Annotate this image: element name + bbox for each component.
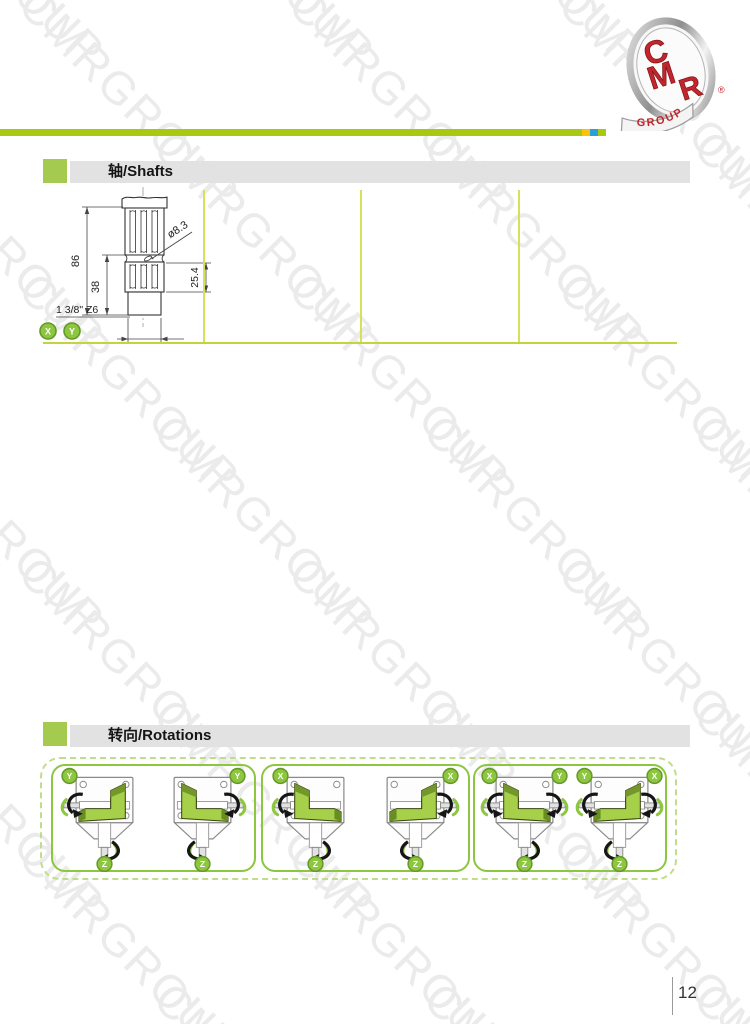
axis-badge-top-right: Y (552, 769, 567, 784)
axis-badge-top-left: Y (577, 769, 592, 784)
svg-text:Z: Z (102, 859, 107, 869)
page-number: 12 (678, 983, 697, 1003)
input-shaft (484, 803, 500, 808)
axis-badge-top-right: X (443, 769, 458, 784)
column-divider-2 (360, 190, 362, 343)
svg-text:Z: Z (413, 859, 418, 869)
input-shaft (550, 803, 566, 808)
spline-label: 1 3/8" Z6 (56, 304, 98, 316)
rotation-diagram: YXZ (572, 766, 667, 872)
svg-text:Z: Z (617, 859, 622, 869)
rotation-box-2: XZXZ (261, 764, 470, 872)
column-divider-3 (518, 190, 520, 343)
svg-text:X: X (487, 771, 493, 781)
dim-86-text: 86 (70, 255, 82, 267)
rotations-header-title: 转向/Rotations (108, 725, 211, 747)
shafts-header-square (43, 159, 67, 183)
rotation-box-1: YZYZ (51, 764, 256, 872)
input-shaft (64, 803, 80, 808)
axis-badge-bottom: Z (517, 857, 532, 872)
svg-text:Y: Y (235, 771, 241, 781)
dim-38-text: 38 (90, 281, 102, 293)
axis-badge-top-right: Y (230, 769, 245, 784)
svg-text:X: X (45, 326, 51, 336)
corner-screw (595, 781, 601, 787)
svg-text:Y: Y (66, 771, 72, 781)
rotation-diagram: YZ (57, 766, 152, 872)
axis-badge-bottom: Z (195, 857, 210, 872)
page-number-rule (672, 977, 673, 1015)
top-bar-yellow (582, 129, 590, 136)
axis-badge-bottom: Z (612, 857, 627, 872)
shafts-header-title: 轴/Shafts (108, 161, 173, 183)
svg-text:Z: Z (200, 859, 205, 869)
input-shaft (228, 803, 244, 808)
column-divider-1 (203, 190, 205, 343)
svg-text:Y: Y (69, 326, 75, 336)
svg-text:X: X (277, 771, 283, 781)
shaft-break (122, 197, 167, 208)
dim-diameter-text: ø8.3 (165, 219, 190, 241)
rotation-diagram: YZ (155, 766, 250, 872)
axis-badge-x: X (40, 323, 56, 339)
top-bar-green (0, 129, 582, 136)
input-shaft (579, 803, 595, 808)
table-bottom-rule (43, 342, 677, 344)
input-shaft (275, 803, 291, 808)
axis-badge-top-right: X (647, 769, 662, 784)
corner-screw (80, 781, 86, 787)
dim-25-4-text: 25.4 (189, 267, 201, 288)
top-bar-blue (590, 129, 598, 136)
top-bar-green-tip (598, 129, 606, 136)
rotation-diagram: XZ (368, 766, 463, 872)
svg-text:Z: Z (313, 859, 318, 869)
axis-badge-bottom: Z (308, 857, 323, 872)
axis-badge-top-left: X (482, 769, 497, 784)
page: C M R GROUP ® 轴/Shafts (0, 0, 750, 1024)
svg-text:Y: Y (557, 771, 563, 781)
svg-text:X: X (652, 771, 658, 781)
corner-screw (543, 781, 549, 787)
rotation-diagram: XZ (268, 766, 363, 872)
dimension-38 (102, 255, 125, 315)
registered-mark: ® (718, 85, 725, 95)
axis-badge-bottom: Z (97, 857, 112, 872)
rotation-diagram: XYZ (477, 766, 572, 872)
input-shaft (645, 803, 661, 808)
corner-screw (221, 781, 227, 787)
corner-screw (333, 781, 339, 787)
cmr-group-logo: C M R GROUP ® (610, 13, 732, 131)
input-shaft (441, 803, 457, 808)
axis-badge-y: Y (64, 323, 80, 339)
rotations-header-square (43, 722, 67, 746)
shaft-technical-drawing: 86 38 25.4 ø8.3 1 3/8" Z6 (32, 181, 214, 351)
rotation-box-3: XYZYXZ (473, 764, 667, 872)
dimension-86 (82, 207, 128, 315)
axis-badge-top-left: Y (62, 769, 77, 784)
svg-text:X: X (448, 771, 454, 781)
axis-badge-top-left: X (273, 769, 288, 784)
svg-text:Z: Z (522, 859, 527, 869)
svg-text:Y: Y (582, 771, 588, 781)
corner-screw (391, 781, 397, 787)
axis-badge-bottom: Z (408, 857, 423, 872)
